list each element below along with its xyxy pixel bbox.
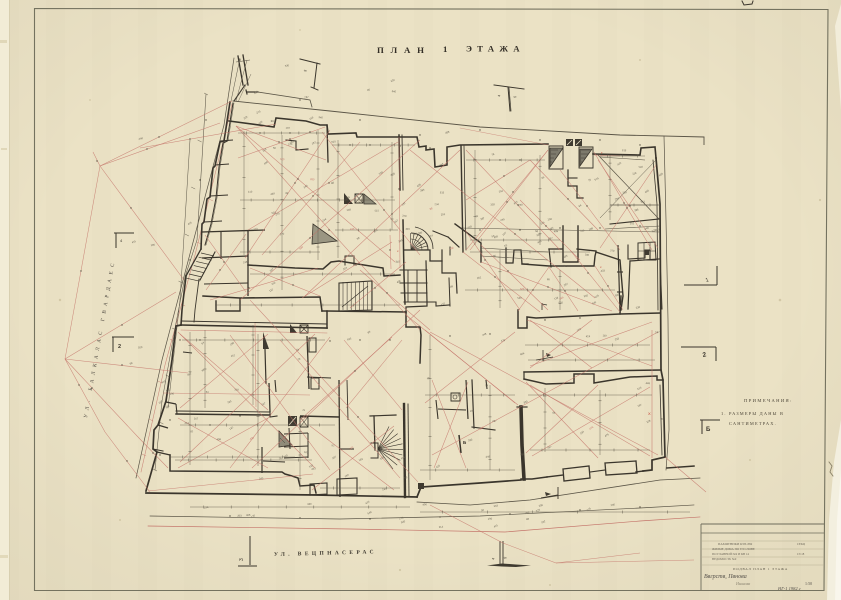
svg-text:108: 108 [470,409,475,413]
svg-text:448: 448 [646,381,651,385]
svg-text:318: 318 [234,387,239,391]
svg-text:540: 540 [517,296,522,300]
svg-text:234: 234 [435,202,440,206]
svg-text:X: X [648,411,651,416]
svg-text:252: 252 [630,221,635,225]
svg-text:1: 1 [443,44,447,54]
svg-text:190: 190 [170,392,175,396]
svg-text:515: 515 [375,209,380,213]
svg-text:110: 110 [580,228,585,232]
svg-text:406: 406 [422,502,427,506]
svg-text:540: 540 [259,476,264,480]
svg-text:ПО ГЛАВНОЙ №9 И КВ 14: ПО ГЛАВНОЙ №9 И КВ 14 [712,551,749,556]
svg-text:203: 203 [237,514,242,518]
svg-text:1:50: 1:50 [805,581,812,586]
svg-text:СТ.18: СТ.18 [797,552,805,556]
svg-text:110: 110 [248,190,253,194]
svg-text:167: 167 [231,354,236,358]
svg-text:340: 340 [405,227,410,231]
svg-text:433: 433 [350,227,355,231]
svg-text:520: 520 [558,300,563,304]
svg-text:287: 287 [304,95,309,99]
svg-text:ВЕДОМОСТЬ №9: ВЕДОМОСТЬ №9 [712,557,737,561]
svg-text:540: 540 [639,165,644,169]
svg-text:310: 310 [395,259,400,263]
svg-text:ЖИЛЫЕ ДОМА ПО УЛ СЛОВЕ: ЖИЛЫЕ ДОМА ПО УЛ СЛОВЕ [712,547,755,551]
svg-text:406: 406 [246,513,251,517]
svg-text:515: 515 [440,190,445,194]
svg-text:ПЛАН: ПЛАН [377,45,431,55]
svg-text:ЭТАЖА: ЭТАЖА [466,44,525,54]
svg-text:406: 406 [216,437,221,441]
svg-text:2: 2 [118,344,121,350]
svg-text:1. РАЗМЕРЫ ДАНЫ В: 1. РАЗМЕРЫ ДАНЫ В [721,411,784,416]
svg-text:ПАМЯТНИКИ КУЛ-РЫ: ПАМЯТНИКИ КУЛ-РЫ [718,542,752,546]
svg-text:3: 3 [239,558,245,561]
svg-text:515: 515 [622,148,627,152]
svg-text:214: 214 [184,421,189,425]
svg-text:330: 330 [307,502,312,506]
svg-text:520: 520 [280,157,285,161]
svg-text:Ввгрств, Пвнова: Ввгрств, Пвнова [704,574,747,580]
svg-text:САНТИМЕТРАХ.: САНТИМЕТРАХ. [729,421,777,426]
svg-text:ПОДВАЛ ПЛАН 1 ЭТАЖА: ПОДВАЛ ПЛАН 1 ЭТАЖА [733,567,788,571]
svg-text:Б: Б [706,427,711,433]
svg-text:448: 448 [486,455,491,459]
svg-text:187: 187 [286,126,291,130]
svg-text:167: 167 [194,416,199,420]
svg-text:190: 190 [488,517,493,521]
svg-text:СЕКЦ: СЕКЦ [797,542,806,546]
svg-text:Иванова: Иванова [735,581,750,586]
svg-text:ПРИМЕЧАНИЯ:: ПРИМЕЧАНИЯ: [744,398,793,403]
svg-text:НГ-1 1982 г: НГ-1 1982 г [777,586,801,591]
